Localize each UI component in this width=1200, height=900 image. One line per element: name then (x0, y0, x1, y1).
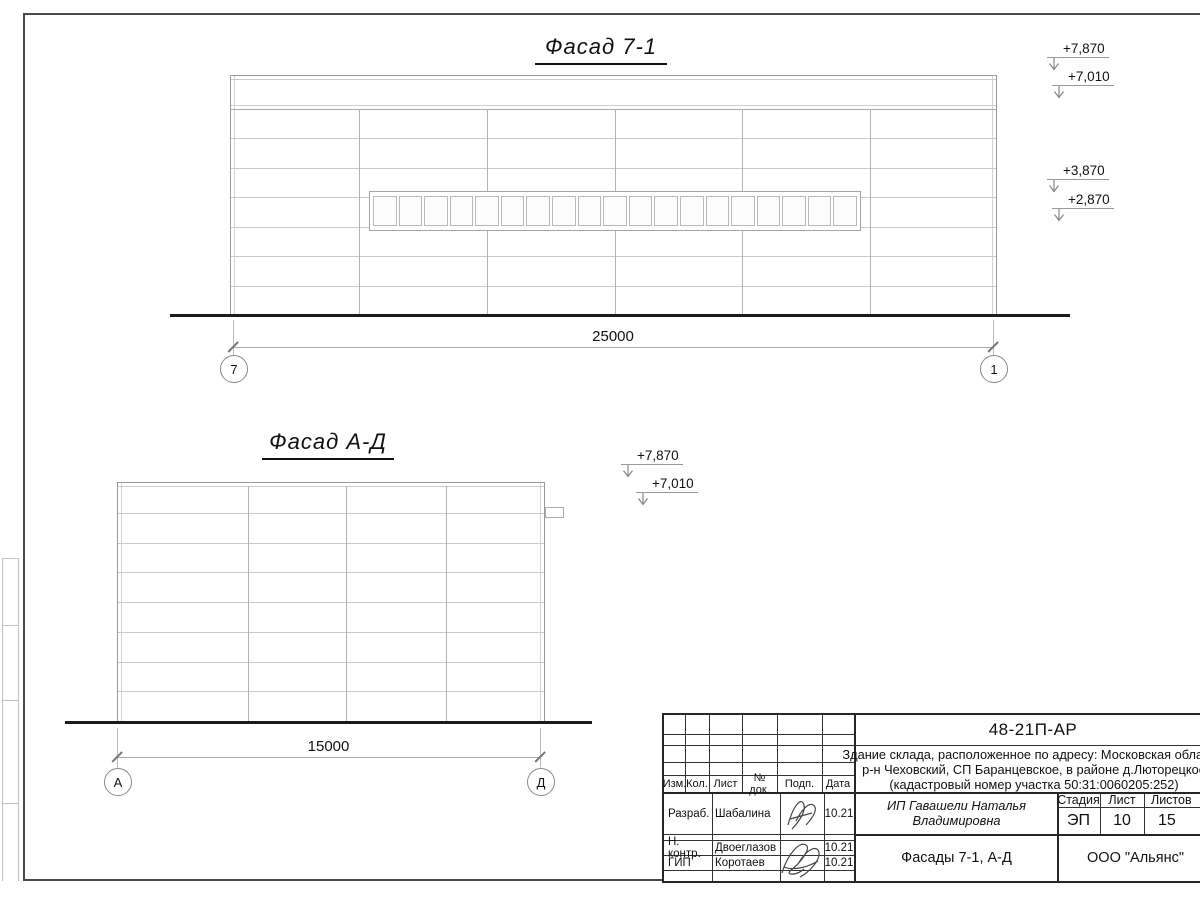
document-number: 48-21П-АР (854, 715, 1200, 745)
level-value: +3,870 (1063, 163, 1105, 178)
signer-date: 10.21 (824, 855, 854, 870)
column-line (248, 486, 249, 721)
window-pane (706, 196, 730, 226)
title-block-line (664, 762, 854, 763)
facade-a-d-drawing (117, 482, 545, 722)
signer-date: 10.21 (824, 805, 854, 823)
margin-strip-divider (2, 558, 18, 559)
siding-line (231, 256, 996, 257)
signer-role: Н. контр. (668, 840, 714, 855)
grid-axis-bubble: 1 (980, 355, 1008, 383)
level-mark: +7,010 (1068, 69, 1110, 84)
title-block-line (664, 870, 854, 871)
description-line: (кадастровый номер участка 50:31:0060205… (889, 777, 1178, 792)
grid-axis-bubble: Д (527, 768, 555, 796)
margin-strip-line (18, 558, 19, 881)
stamp-col-ndok: № док. (742, 775, 777, 792)
stage-value: ЭП (1057, 807, 1100, 834)
window-pane (373, 196, 397, 226)
parapet-line (118, 486, 544, 487)
stage-col-header: Стадия (1057, 792, 1100, 807)
window-pane (629, 196, 653, 226)
dimension-line (117, 757, 540, 758)
siding-line (118, 543, 544, 544)
wall-edge-line (992, 76, 993, 315)
window-pane (578, 196, 602, 226)
level-arrow-icon (636, 493, 650, 509)
title-block: Изм. Кол. Лист № док. Подп. Дата 48-21П-… (662, 713, 1200, 883)
window-pane (654, 196, 678, 226)
level-arrow-icon (1047, 58, 1061, 74)
window-pane (501, 196, 525, 226)
stamp-col-izm: Изм. (664, 775, 685, 792)
wall-edge-line (234, 76, 235, 315)
level-value: +7,010 (652, 476, 694, 491)
level-mark: +7,870 (637, 448, 679, 463)
axis-label: А (114, 775, 123, 790)
level-mark: +2,870 (1068, 192, 1110, 207)
level-arrow-icon (621, 465, 635, 481)
siding-line (231, 138, 996, 139)
sheet-frame-left (23, 13, 25, 881)
dimension-value: 25000 (233, 328, 993, 345)
sheets-total-value: 15 (1144, 807, 1200, 834)
level-value: +7,870 (1063, 41, 1105, 56)
level-mark: +7,010 (652, 476, 694, 491)
axis-label: 1 (990, 362, 997, 377)
window-pane (552, 196, 576, 226)
parapet-line (231, 105, 996, 106)
margin-strip-divider (2, 625, 18, 626)
window-pane (475, 196, 499, 226)
facade-7-1-drawing (230, 75, 997, 316)
company-name: ООО "Альянс" (1059, 835, 1200, 881)
sheet-title: Фасады 7-1, А-Д (856, 835, 1057, 881)
level-arrow-icon (1047, 180, 1061, 196)
window-pane (808, 196, 832, 226)
window-pane (603, 196, 627, 226)
margin-strip-line (2, 558, 3, 881)
siding-line (118, 632, 544, 633)
signer-date: 10.21 (824, 840, 854, 855)
ground-line (170, 314, 1070, 317)
parapet-line (231, 109, 996, 110)
project-description: Здание склада, расположенное по адресу: … (856, 746, 1200, 792)
level-value: +7,010 (1068, 69, 1110, 84)
level-value: +2,870 (1068, 192, 1110, 207)
siding-line (118, 572, 544, 573)
facade-7-1-title: Фасад 7-1 (535, 34, 667, 65)
window-pane (450, 196, 474, 226)
drawing-sheet: Фасад 7-1 25000 7 1 +7,870 +7,010 +3,870… (0, 0, 1200, 900)
axis-label: Д (537, 775, 546, 790)
window-pane (782, 196, 806, 226)
window-pane (757, 196, 781, 226)
dimension-value: 15000 (117, 738, 540, 755)
margin-strip-divider (2, 803, 18, 804)
axis-label: 7 (230, 362, 237, 377)
column-line (870, 109, 871, 315)
stamp-col-data: Дата (822, 775, 854, 792)
margin-strip-divider (2, 700, 18, 701)
description-line: р-н Чеховский, СП Баранцевское, в районе… (862, 762, 1200, 777)
list-col-header: Лист (1100, 792, 1144, 807)
sheet-frame-top (23, 13, 1200, 15)
ground-line (65, 721, 592, 724)
siding-line (118, 691, 544, 692)
siding-line (118, 513, 544, 514)
siding-line (231, 286, 996, 287)
stamp-col-kol: Кол. (685, 775, 709, 792)
signer-role: Разраб. (668, 805, 712, 823)
title-block-line (664, 745, 854, 746)
siding-line (231, 168, 996, 169)
siding-line (118, 662, 544, 663)
column-line (359, 109, 360, 315)
facade-a-d-title: Фасад А-Д (262, 429, 394, 460)
window-pane (526, 196, 550, 226)
signer-name: Двоеглазов (715, 840, 779, 855)
extension-line (540, 728, 541, 768)
grid-axis-bubble: А (104, 768, 132, 796)
column-line (446, 486, 447, 721)
canopy-protrusion (545, 507, 564, 518)
signer-role: ГИП (668, 855, 714, 870)
grid-axis-bubble: 7 (220, 355, 248, 383)
description-line: Здание склада, расположенное по адресу: … (842, 747, 1200, 762)
level-mark: +7,870 (1063, 41, 1105, 56)
level-mark: +3,870 (1063, 163, 1105, 178)
siding-line (118, 602, 544, 603)
window-band (369, 191, 861, 231)
client-name: ИП Гавашели Наталья Владимировна (856, 792, 1057, 834)
signer-name: Коротаев (715, 855, 779, 870)
signature (778, 837, 824, 881)
signature (782, 795, 822, 833)
title-block-line (664, 734, 854, 735)
listov-col-header: Листов (1144, 792, 1200, 807)
dimension-line (233, 347, 993, 348)
window-pane (424, 196, 448, 226)
window-pane (399, 196, 423, 226)
window-pane (833, 196, 857, 226)
stamp-col-list: Лист (709, 775, 742, 792)
extension-line (993, 320, 994, 355)
stamp-col-podp: Подп. (777, 775, 822, 792)
column-line (346, 486, 347, 721)
sheet-number-value: 10 (1100, 807, 1144, 834)
level-value: +7,870 (637, 448, 679, 463)
signer-name: Шабалина (715, 805, 779, 823)
window-pane (731, 196, 755, 226)
level-arrow-icon (1052, 209, 1066, 225)
parapet-line (231, 79, 996, 80)
level-arrow-icon (1052, 86, 1066, 102)
window-pane (680, 196, 704, 226)
